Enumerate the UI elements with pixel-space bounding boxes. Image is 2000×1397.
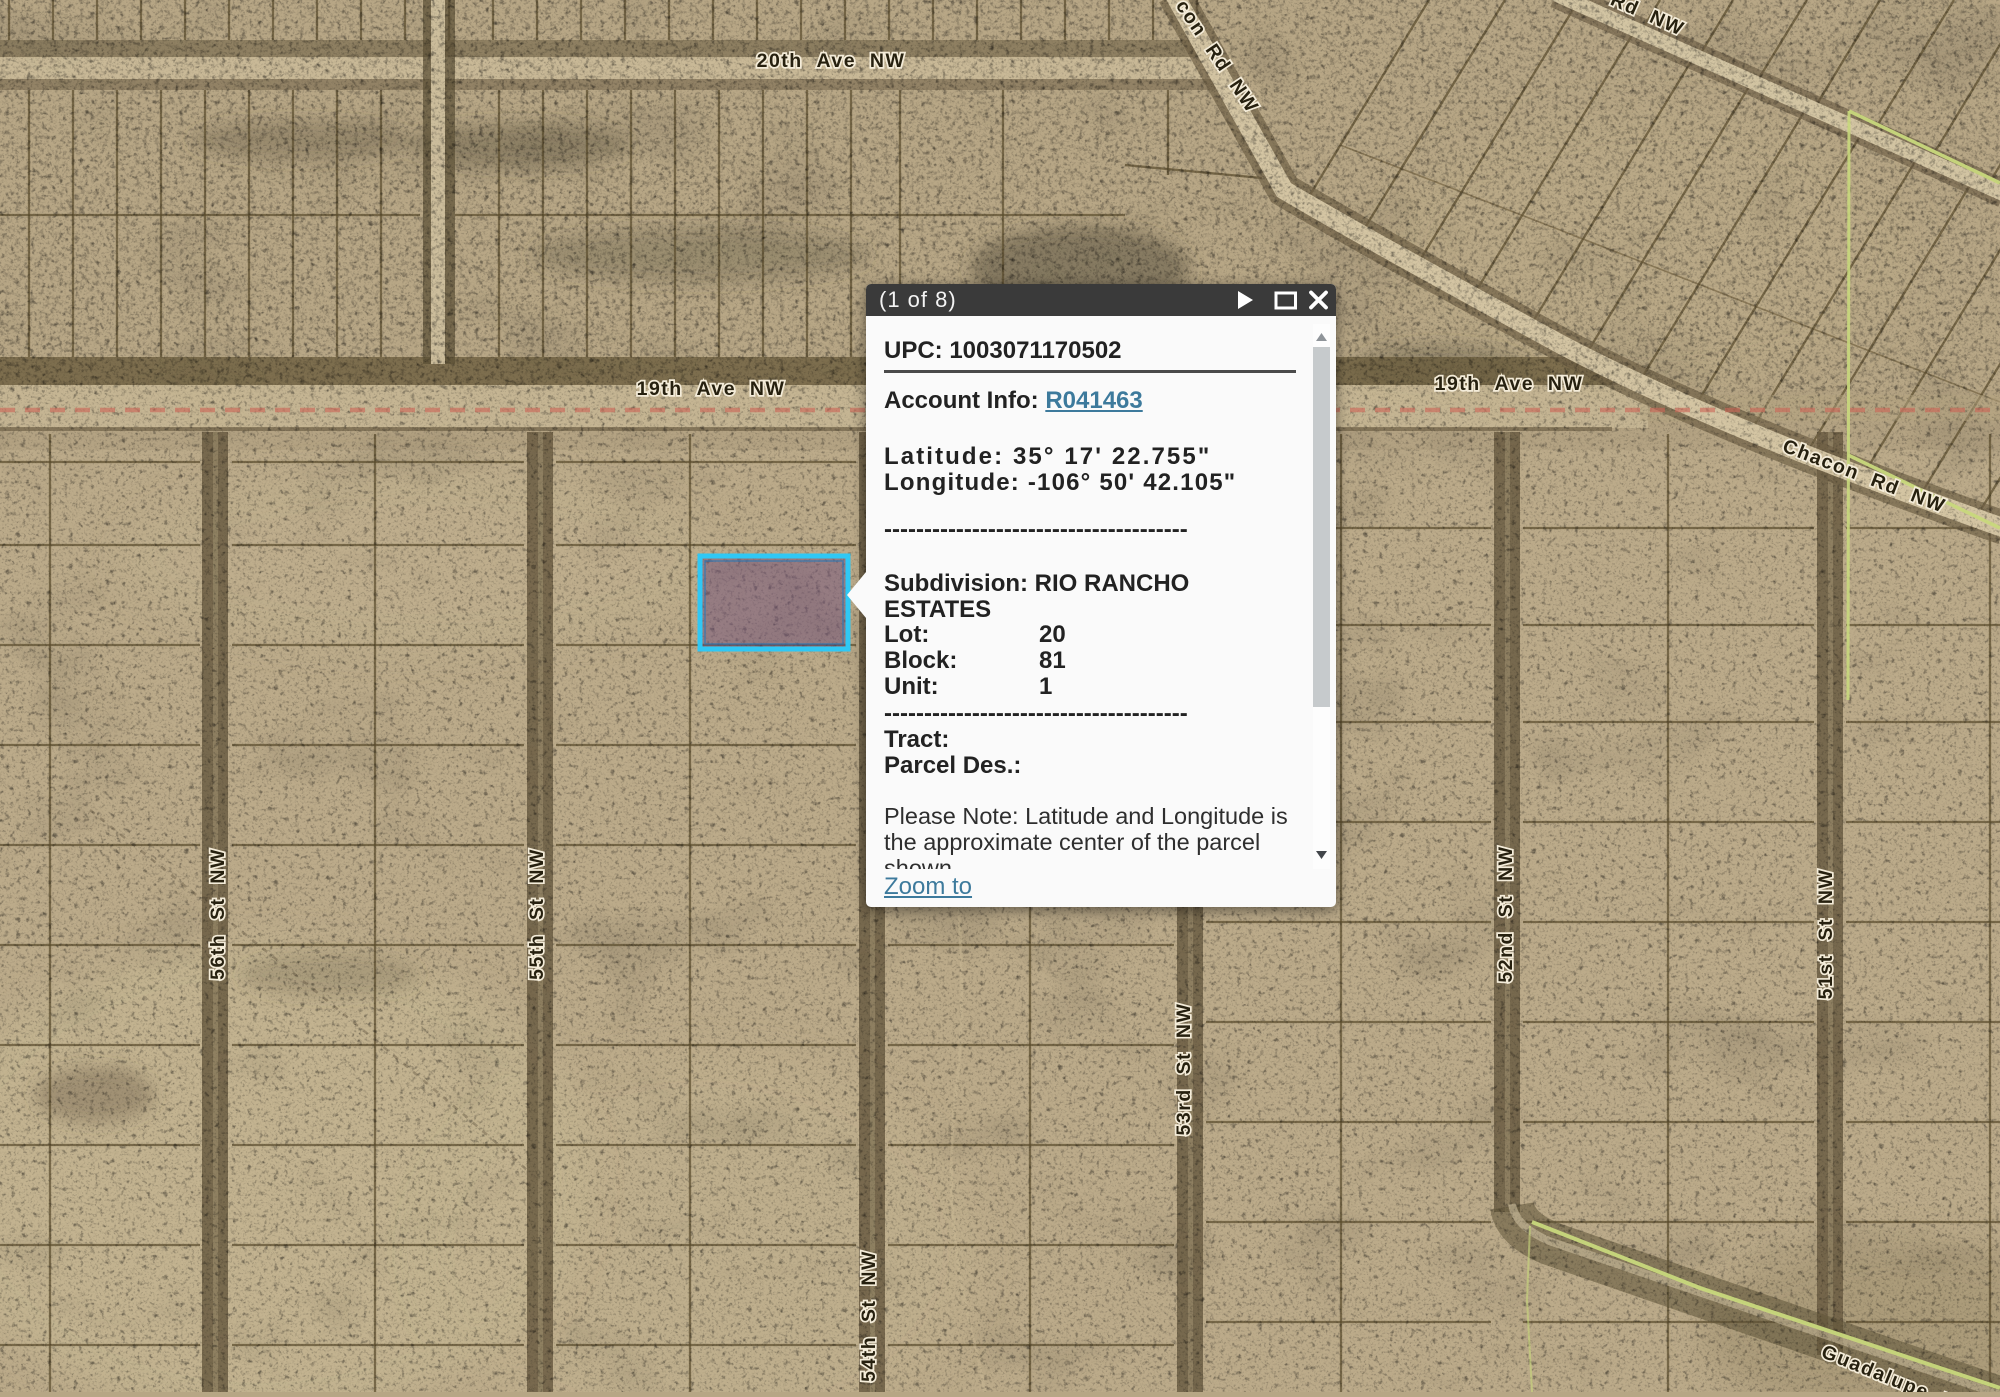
svg-text:51st St NW: 51st St NW bbox=[1815, 869, 1837, 1000]
svg-text:53rd St NW: 53rd St NW bbox=[1173, 1003, 1195, 1136]
svg-text:52nd St NW: 52nd St NW bbox=[1495, 845, 1517, 982]
svg-text:55th St NW: 55th St NW bbox=[526, 848, 548, 980]
svg-text:19th Ave NW: 19th Ave NW bbox=[637, 378, 786, 400]
svg-text:56th St NW: 56th St NW bbox=[207, 848, 229, 980]
svg-text:19th Ave NW: 19th Ave NW bbox=[1435, 373, 1584, 395]
svg-text:54th St NW: 54th St NW bbox=[858, 1250, 880, 1382]
svg-text:20th Ave NW: 20th Ave NW bbox=[757, 50, 906, 72]
